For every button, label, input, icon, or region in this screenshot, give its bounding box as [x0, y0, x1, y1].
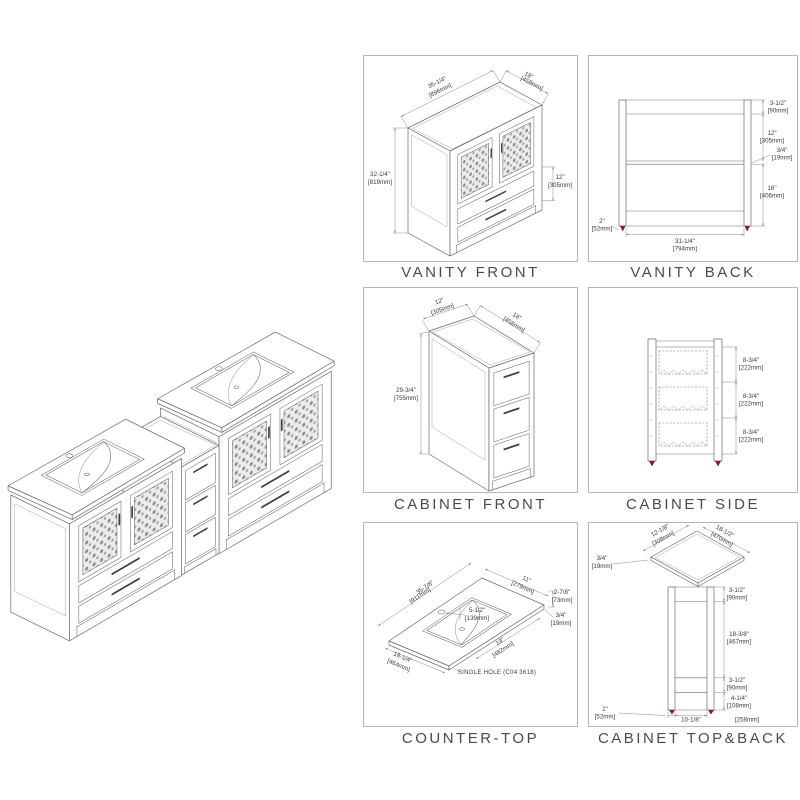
dim-hole-mm: [139mm] [465, 615, 489, 622]
dim-back-mid-mm: [467mm] [727, 639, 751, 646]
dim-hole-in: 5-1/2" [469, 607, 485, 614]
panel-title-counter-top: COUNTER-TOP [363, 730, 578, 747]
dim-height-mm: [755mm] [394, 395, 418, 402]
back-leg [744, 100, 751, 226]
dim-height-in: 29-3/4" [396, 387, 416, 394]
drawer-glide-zigzag [659, 406, 707, 410]
single-hole-note: SINGLE HOLE (C04 3618) [458, 670, 536, 676]
dim-back-bottom-in: 4-1/4" [731, 695, 747, 702]
dim-width-in: 31-1/4" [675, 238, 695, 245]
drawer-box-dashed [659, 351, 707, 374]
dim-toprail-in: 3-1/2" [770, 100, 786, 107]
side-leg [714, 339, 722, 461]
dim-back-toprail-mm: [90mm] [727, 595, 748, 602]
dim-back-leg-in: 2" [602, 706, 608, 713]
drawer-box-dashed [659, 387, 707, 410]
panel-cabinet-front: 12" [305mm] 18" [458mm] 29-3/4" [755mm] [363, 287, 578, 493]
panel-title-cabinet-topback: CABINET TOP&BACK [588, 730, 798, 747]
spec-sheet-page: { "colors": { "background": "#ffffff", "… [0, 0, 800, 800]
dim-thick-in: 3/4" [556, 612, 567, 619]
dim-drawers-mm: [305mm] [548, 182, 572, 189]
dim-width-mm: [305mm] [430, 302, 455, 316]
dim-edge-in: 2-7/8" [554, 589, 570, 596]
vanity-front-diagram: 35-1/4" [896mm] 18" [458mm] 32-1/4" [819… [364, 56, 577, 261]
dim-back-bottom-mm: [108mm] [727, 703, 751, 710]
drawer-box-dashed [659, 423, 707, 446]
dim-toprail-mm: [90mm] [768, 108, 789, 115]
foot-pad-marker [745, 226, 751, 232]
dim-back-lower-mm: [90mm] [727, 685, 748, 692]
panel-title-vanity-front: VANITY FRONT [363, 264, 578, 281]
dim-mid-mm: [305mm] [760, 138, 784, 145]
dim-back-width-in: 10-1/8" [681, 717, 701, 724]
panel-cabinet-side: 8-3/4" [222mm] 8-3/4" [222mm] 8-3/4" [22… [588, 287, 798, 493]
cabinet-topback-diagram: 12-1/8" [308mm] 18-1/2" [470mm] 3/4" [19… [589, 523, 797, 726]
foot-pad-marker [649, 461, 655, 467]
dim-back-toprail-in: 3-1/2" [729, 587, 745, 594]
counter-top-diagram: 35-7/8" [911mm] 11" [279mm] 2-7/8" [73mm… [364, 523, 577, 726]
door-handle [491, 148, 492, 158]
foot-pad-marker [715, 461, 721, 467]
dim-thick-mm: [19mm] [551, 620, 572, 627]
dim-section3-in: 8-3/4" [743, 429, 759, 436]
side-panel [408, 128, 450, 256]
dim-back-width-mm: [258mm] [735, 717, 759, 724]
drawer-front-face [489, 353, 534, 491]
dim-section3-mm: [222mm] [739, 437, 763, 444]
dim-lower-in: 16" [767, 185, 776, 192]
foot-pad-marker [620, 226, 626, 232]
dim-back-leg-mm: [52mm] [595, 714, 616, 721]
dim-height-mm: [819mm] [368, 179, 392, 186]
panel-vanity-front: 35-1/4" [896mm] 18" [458mm] 32-1/4" [819… [363, 55, 578, 262]
side-leg [648, 339, 656, 461]
dim-shelf-mm: [19mm] [772, 155, 793, 162]
dim-height-in: 32-1/4" [370, 171, 390, 178]
vanity-back-diagram: 3-1/2" [90mm] 12" [305mm] 3/4" [19mm] 16… [589, 56, 797, 261]
foot-pad-marker [669, 710, 675, 715]
cabinet-side-diagram: 8-3/4" [222mm] 8-3/4" [222mm] 8-3/4" [22… [589, 288, 797, 492]
dim-mid-in: 12" [767, 130, 776, 137]
dim-section1-in: 8-3/4" [743, 357, 759, 364]
drawer-glide-zigzag [659, 370, 707, 374]
panel-counter-top: 35-7/8" [911mm] 11" [279mm] 2-7/8" [73mm… [363, 522, 578, 727]
dim-section1-mm: [222mm] [739, 365, 763, 372]
dim-shelf-in: 3/4" [777, 147, 788, 154]
back-leg [668, 587, 675, 710]
dim-back-mid-in: 18-3/8" [729, 631, 749, 638]
dim-section2-in: 8-3/4" [743, 393, 759, 400]
panel-title-cabinet-front: CABINET FRONT [363, 496, 578, 513]
panel-cabinet-topback: 12-1/8" [308mm] 18-1/2" [470mm] 3/4" [19… [588, 522, 798, 727]
back-leg [707, 587, 714, 710]
panel-vanity-back: 3-1/2" [90mm] 12" [305mm] 3/4" [19mm] 16… [588, 55, 798, 262]
dim-back-lower-in: 3-1/2" [729, 677, 745, 684]
panel-title-cabinet-side: CABINET SIDE [588, 496, 798, 513]
drawer-glide-zigzag [659, 442, 707, 446]
assembled-vanity-drawing [0, 330, 360, 660]
dim-edge-mm: [73mm] [552, 597, 573, 604]
dim-width-mm: [794mm] [673, 246, 697, 253]
dim-leg-mm: [52mm] [592, 226, 613, 233]
panel-title-vanity-back: VANITY BACK [588, 264, 798, 281]
door-handle [501, 143, 502, 153]
foot-pad-marker [708, 710, 714, 715]
dim-lower-mm: [406mm] [760, 193, 784, 200]
dim-top-thick-mm: [19mm] [592, 563, 613, 570]
dim-top-thick-in: 3/4" [597, 555, 608, 562]
back-leg [619, 100, 626, 226]
dim-drawers-in: 12" [555, 174, 564, 181]
cabinet-front-diagram: 12" [305mm] 18" [458mm] 29-3/4" [755mm] [364, 288, 577, 492]
dim-leg-in: 2" [599, 218, 605, 225]
dim-section2-mm: [222mm] [739, 401, 763, 408]
